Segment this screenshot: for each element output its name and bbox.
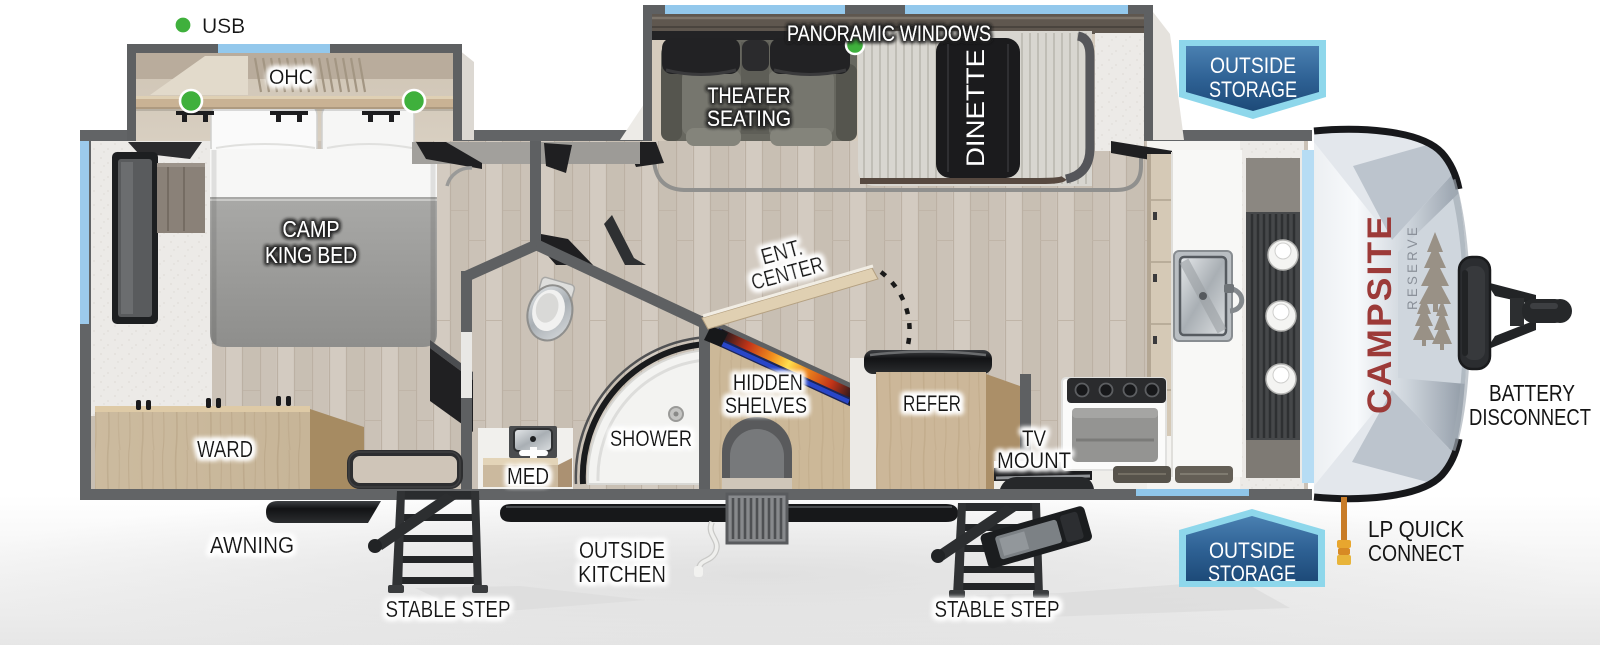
svg-text:CAMP: CAMP (283, 216, 340, 242)
svg-text:AWNING: AWNING (210, 532, 294, 558)
svg-text:STABLE STEP: STABLE STEP (386, 596, 511, 622)
svg-text:DINETTE: DINETTE (962, 49, 990, 167)
svg-text:HIDDEN: HIDDEN (733, 370, 803, 395)
svg-text:BATTERY: BATTERY (1489, 380, 1575, 406)
svg-text:LP QUICK: LP QUICK (1368, 516, 1465, 542)
svg-text:OUTSIDE: OUTSIDE (579, 537, 665, 563)
svg-text:REFER: REFER (903, 391, 961, 416)
svg-text:WARD: WARD (197, 436, 253, 462)
svg-text:SHOWER: SHOWER (610, 426, 692, 451)
svg-text:OUTSIDE: OUTSIDE (1209, 538, 1295, 563)
svg-text:STABLE STEP: STABLE STEP (935, 596, 1060, 622)
svg-text:THEATER: THEATER (708, 83, 791, 108)
svg-text:KING BED: KING BED (265, 242, 357, 268)
svg-text:PANORAMIC WINDOWS: PANORAMIC WINDOWS (787, 21, 991, 46)
svg-text:DISCONNECT: DISCONNECT (1469, 404, 1591, 430)
svg-text:STORAGE: STORAGE (1208, 561, 1296, 586)
svg-text:STORAGE: STORAGE (1209, 77, 1297, 102)
svg-text:SHELVES: SHELVES (725, 393, 807, 418)
svg-text:CONNECT: CONNECT (1368, 540, 1464, 566)
svg-text:MOUNT: MOUNT (997, 448, 1071, 473)
svg-text:RESERVE: RESERVE (1404, 224, 1420, 310)
svg-text:MED: MED (507, 463, 549, 489)
svg-text:USB: USB (202, 15, 245, 38)
svg-text:OHC: OHC (269, 66, 313, 89)
svg-text:SEATING: SEATING (707, 106, 791, 131)
svg-text:OUTSIDE: OUTSIDE (1210, 53, 1296, 78)
svg-text:CAMPSITE: CAMPSITE (1361, 214, 1399, 414)
svg-text:KITCHEN: KITCHEN (578, 561, 666, 587)
